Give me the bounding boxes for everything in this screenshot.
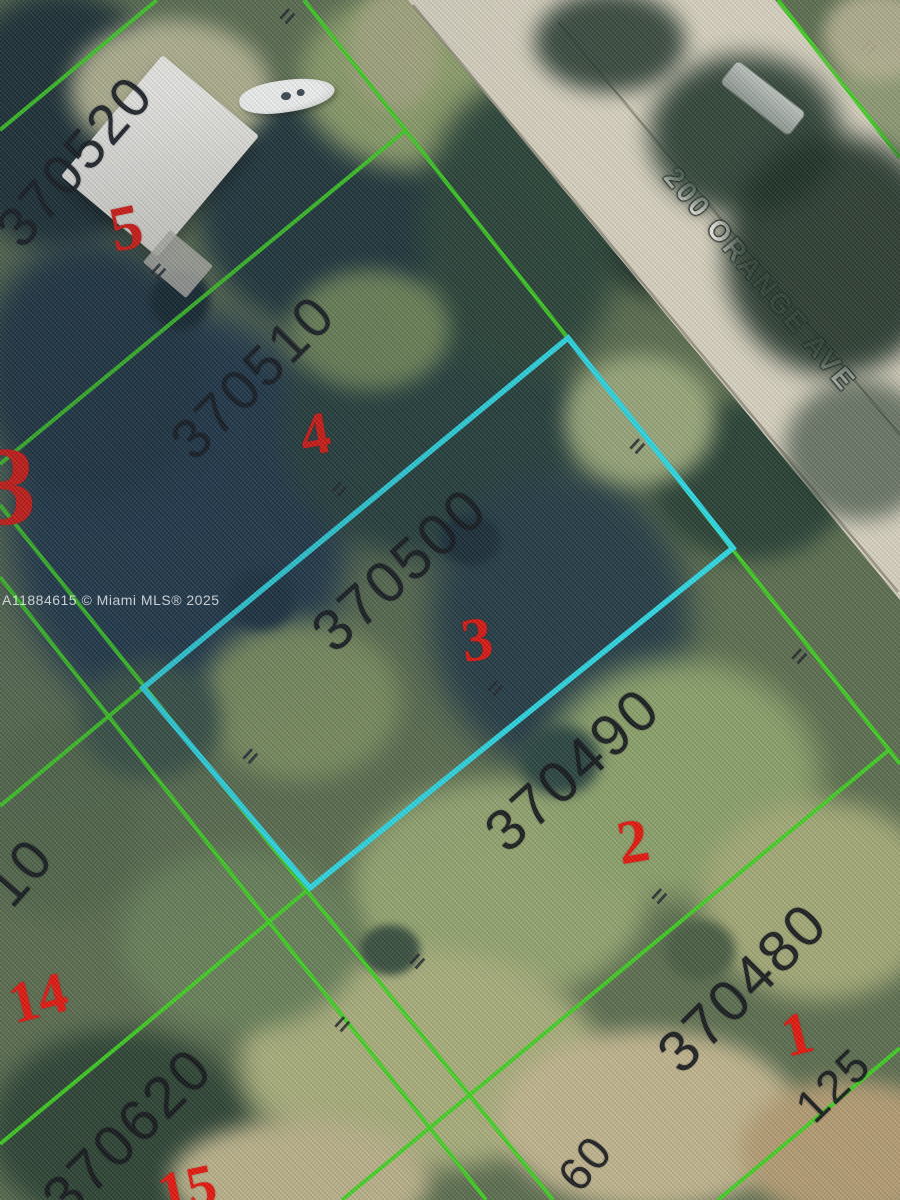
corner-tick-mark: = — [324, 475, 353, 504]
lot-number-label: 4 — [295, 402, 335, 466]
corner-tick-mark: = — [402, 947, 431, 976]
corner-tick-mark: = — [143, 257, 172, 286]
lot-number-label: 14 — [3, 963, 73, 1033]
lot-number-label: 1 — [775, 1001, 819, 1066]
lot-dimension-label: 60 — [550, 1127, 621, 1199]
corner-tick-mark: = — [622, 432, 651, 461]
lot-number-label: 2 — [612, 809, 653, 875]
corner-tick-mark: = — [854, 33, 883, 62]
corner-tick-mark: = — [644, 882, 673, 911]
lot-number-label: 3 — [0, 431, 36, 543]
aerial-map: 3705203705103705003704903704803706201012… — [0, 0, 900, 1200]
corner-tick-mark: = — [272, 2, 301, 31]
lot-number-label: 15 — [153, 1155, 222, 1200]
parcel-number-label: 10 — [0, 828, 64, 916]
watermark: A11884615 © Miami MLS® 2025 — [2, 592, 220, 608]
corner-tick-mark: = — [480, 674, 509, 703]
corner-tick-mark: = — [327, 1010, 356, 1039]
lot-number-label: 5 — [104, 193, 149, 262]
lot-number-label: 3 — [457, 607, 496, 673]
corner-tick-mark: = — [784, 642, 813, 671]
corner-tick-mark: = — [235, 742, 264, 771]
